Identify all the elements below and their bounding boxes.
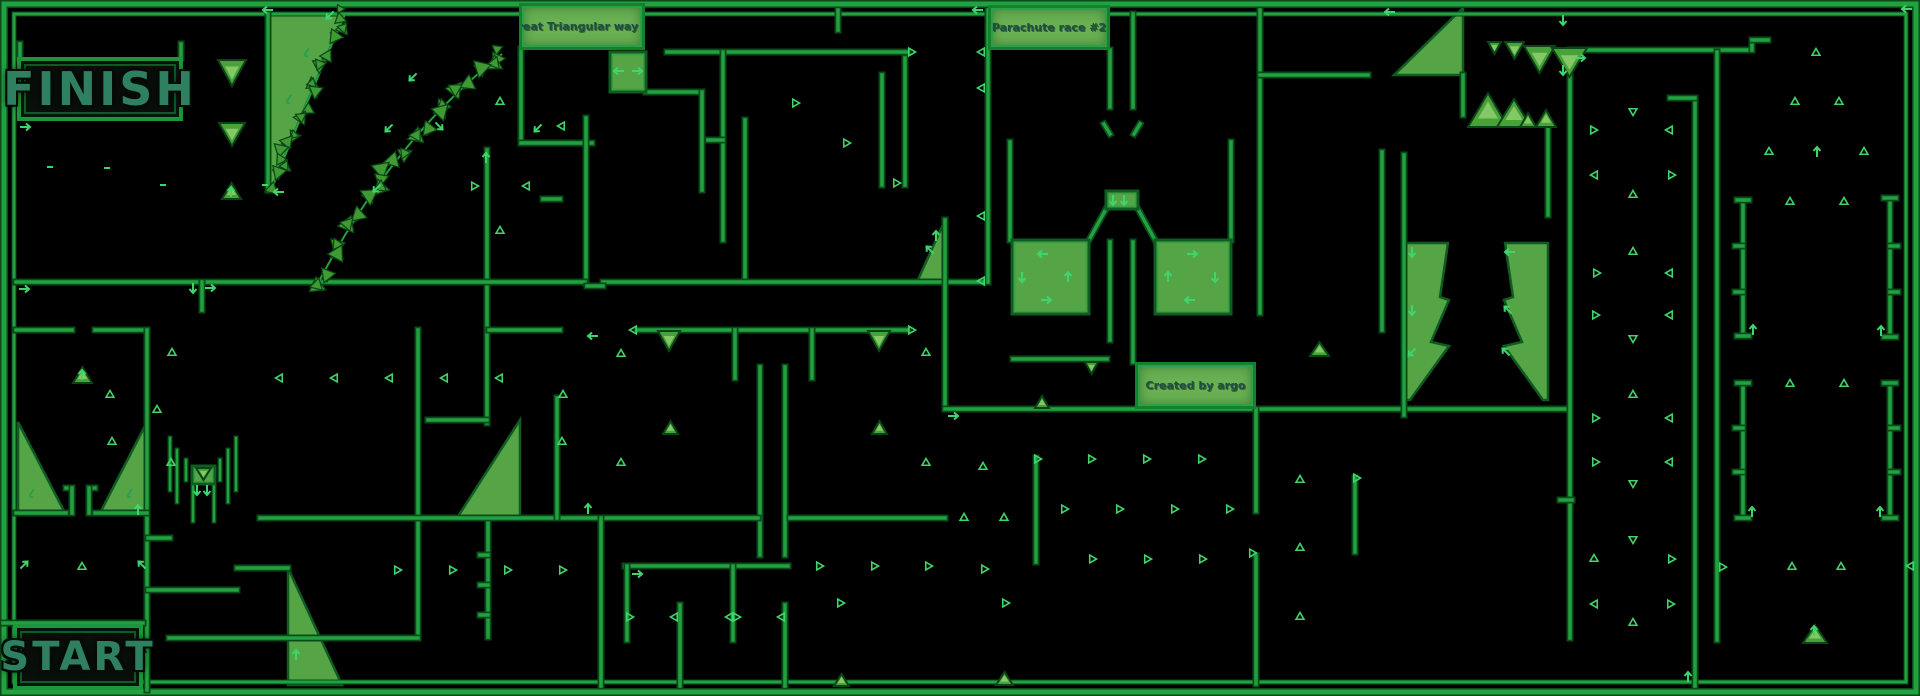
credit-label: Created by argo [1146,379,1246,392]
race-map: FINISH START Great Triangular way :D Par… [0,0,1920,696]
way-sign: Great Triangular way :D [519,3,645,50]
race-label: Parachute race #2 [992,21,1106,34]
race-sign: Parachute race #2 [988,5,1110,50]
finish-label: FINISH [3,62,197,116]
start-sign: START [13,624,143,690]
start-label: START [0,634,155,680]
finish-sign: FINISH [17,57,183,121]
map-canvas [0,0,1920,696]
parachute-box-left [1012,240,1089,314]
credit-sign: Created by argo [1135,362,1256,409]
way-label: Great Triangular way :D [519,20,645,33]
